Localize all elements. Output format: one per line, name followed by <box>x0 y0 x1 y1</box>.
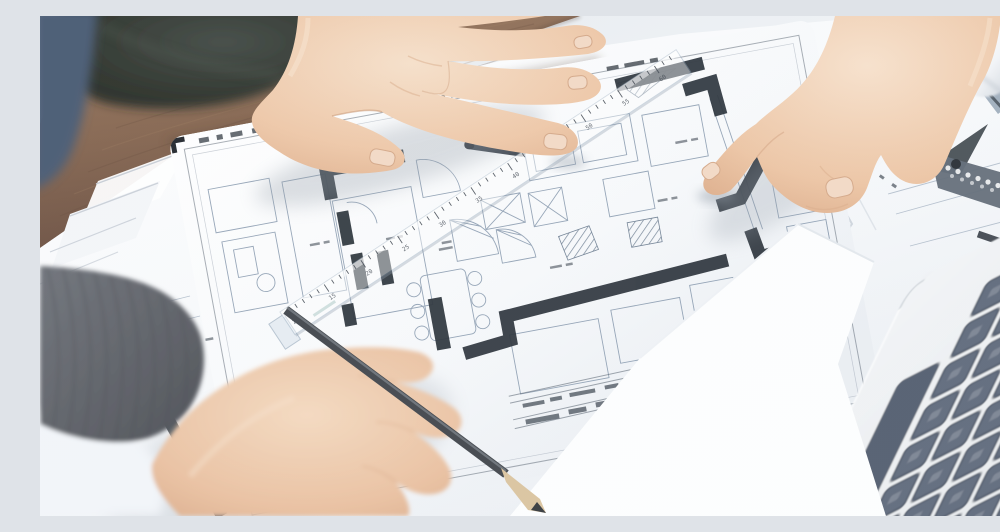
photo-architects-blueprint-desk: 1015202530354045505560 <box>40 16 1000 516</box>
light-overlay <box>40 16 1000 516</box>
